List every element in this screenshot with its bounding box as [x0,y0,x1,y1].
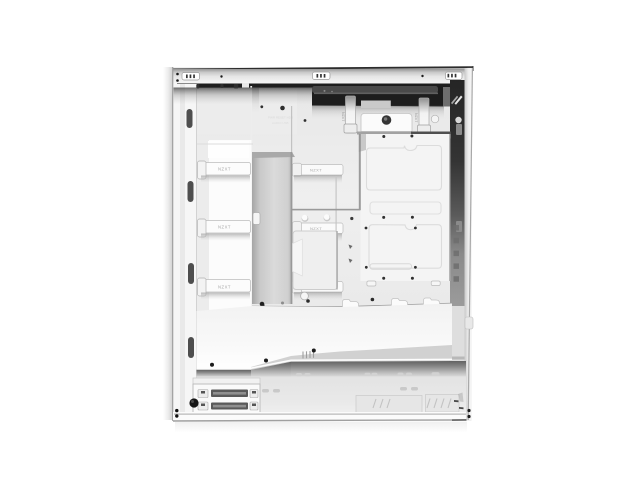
svg-text:NZXT: NZXT [218,225,231,230]
svg-text:PWR RESET HDD: PWR RESET HDD [268,116,294,120]
svg-text:NZXT: NZXT [218,167,231,172]
svg-text:NZXT: NZXT [341,112,345,122]
svg-text:NZXT: NZXT [310,226,322,231]
svg-text:NZXT: NZXT [310,168,322,173]
svg-text:NZXT: NZXT [414,113,418,123]
svg-text:AUDIO USB: AUDIO USB [272,121,289,125]
svg-text:NZXT: NZXT [218,285,231,290]
